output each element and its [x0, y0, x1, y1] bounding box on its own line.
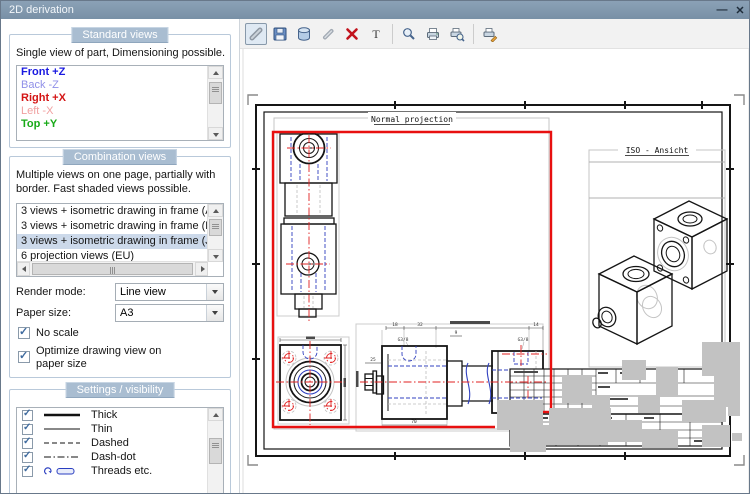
derive-tool-button[interactable] — [245, 23, 267, 45]
scrollbar-thumb[interactable] — [209, 219, 222, 236]
line-style-label: Dash-dot — [91, 451, 136, 463]
scrollbar-thumb[interactable] — [32, 263, 193, 275]
paper-size-label: Paper size: — [16, 307, 71, 319]
iso-view: ISO - Ansicht — [589, 144, 727, 367]
pin-tool-icon — [248, 26, 264, 42]
print-setup-icon — [482, 26, 498, 42]
toolbar: T — [240, 19, 749, 49]
list-item-selected[interactable]: 3 views + isometric drawing in frame (JI… — [17, 234, 223, 249]
iso-block-left — [591, 256, 672, 344]
scrollbar-thumb[interactable] — [209, 438, 222, 464]
svg-text:T: T — [372, 27, 380, 41]
thick-checkbox[interactable] — [22, 410, 33, 421]
dashdot-checkbox[interactable] — [22, 452, 33, 463]
print-setup-button[interactable] — [479, 23, 501, 45]
optimize-checkbox[interactable] — [18, 351, 30, 363]
vertical-scrollbar[interactable] — [207, 408, 223, 494]
printer-icon — [425, 26, 441, 42]
svg-text:G3/8: G3/8 — [518, 337, 529, 343]
combination-description-line1: Multiple views on one page, partially wi… — [16, 169, 215, 181]
no-scale-checkbox[interactable] — [18, 327, 30, 339]
paper-size-select[interactable]: A3 — [115, 304, 224, 322]
optimize-label-line2: paper size — [36, 358, 87, 370]
pin-button[interactable] — [317, 23, 339, 45]
thin-checkbox[interactable] — [22, 424, 33, 435]
scroll-up-button[interactable] — [208, 204, 223, 217]
print-preview-icon — [449, 26, 465, 42]
combination-description-line2: border. Fast shaded views possible. — [16, 183, 191, 195]
threads-checkbox[interactable] — [22, 466, 33, 477]
chevron-down-icon — [212, 311, 218, 315]
standard-views-list: Front +Z Back -Z Right +X Left -X Top +Y — [16, 65, 224, 141]
options-panel: Standard views Single view of part, Dime… — [1, 19, 239, 493]
svg-text:14: 14 — [533, 322, 539, 328]
vertical-scrollbar[interactable] — [207, 66, 223, 140]
optimize-label-line1: Optimize drawing view on — [36, 345, 161, 357]
delete-x-icon — [344, 26, 360, 42]
svg-text:G3/8: G3/8 — [398, 337, 409, 343]
line-style-label: Dashed — [91, 437, 129, 449]
list-item[interactable]: Right +X — [17, 92, 223, 105]
toolbar-separator — [392, 24, 393, 44]
normal-projection-label: Normal projection — [371, 115, 453, 124]
standard-views-legend: Standard views — [71, 27, 168, 43]
toolbar-separator — [473, 24, 474, 44]
dropdown-button[interactable] — [206, 305, 223, 321]
print-preview-button[interactable] — [446, 23, 468, 45]
svg-text:9: 9 — [455, 330, 458, 336]
database-icon — [296, 26, 312, 42]
vertical-scrollbar[interactable] — [207, 204, 223, 262]
chevron-down-icon — [212, 290, 218, 294]
zoom-button[interactable] — [398, 23, 420, 45]
magnifier-icon — [401, 26, 417, 42]
drawing-preview-area[interactable]: Normal projection — [240, 49, 749, 493]
drawing-canvas[interactable]: Normal projection — [240, 49, 750, 494]
title-bar[interactable]: 2D derivation — ✕ — [1, 1, 749, 19]
text-icon: T — [368, 26, 384, 42]
scroll-up-button[interactable] — [208, 66, 223, 79]
dropdown-button[interactable] — [206, 284, 223, 300]
pin-icon — [320, 26, 336, 42]
print-button[interactable] — [422, 23, 444, 45]
combination-views-legend: Combination views — [63, 149, 177, 165]
svg-text:32: 32 — [417, 322, 423, 328]
combination-views-group: Combination views Multiple views on one … — [9, 156, 231, 378]
preview-panel: T — [239, 19, 749, 493]
line-style-label: Thin — [91, 423, 112, 435]
settings-visibility-legend: Settings / visibility — [66, 382, 175, 398]
scroll-down-button[interactable] — [208, 249, 223, 262]
save-icon — [272, 26, 288, 42]
no-scale-label: No scale — [36, 327, 79, 339]
thick-line-icon — [42, 410, 82, 420]
iso-block-right — [652, 201, 727, 289]
paper-size-value: A3 — [116, 307, 206, 319]
list-item[interactable]: 3 views + isometric drawing in frame (AN… — [17, 204, 223, 219]
scroll-right-button[interactable] — [195, 262, 208, 276]
close-button[interactable]: ✕ — [731, 2, 749, 18]
scrollbar-thumb[interactable] — [209, 82, 222, 104]
standard-views-group: Standard views Single view of part, Dime… — [9, 34, 231, 148]
database-button[interactable] — [293, 23, 315, 45]
minimize-button[interactable]: — — [713, 2, 731, 18]
list-item[interactable]: Thick — [17, 408, 223, 422]
scroll-up-button[interactable] — [208, 408, 223, 421]
list-item[interactable]: 3 views + isometric drawing in frame (DI… — [17, 219, 223, 234]
settings-visibility-group: Settings / visibility Thick Thin Dashed — [9, 389, 231, 494]
scroll-left-button[interactable] — [17, 262, 30, 276]
svg-text:18: 18 — [392, 322, 398, 328]
line-style-label: Thick — [91, 409, 117, 421]
list-item[interactable]: Thin — [17, 422, 223, 436]
combination-views-list: 3 views + isometric drawing in frame (AN… — [16, 203, 224, 277]
dashdot-line-icon — [42, 452, 82, 462]
render-mode-value: Line view — [116, 286, 206, 298]
threads-icon — [42, 466, 82, 476]
render-mode-label: Render mode: — [16, 286, 86, 298]
dashed-checkbox[interactable] — [22, 438, 33, 449]
scroll-down-button[interactable] — [208, 127, 223, 140]
list-item[interactable]: Front +Z — [17, 66, 223, 79]
front-view — [277, 133, 339, 322]
thin-line-icon — [42, 424, 82, 434]
standard-views-description: Single view of part, Dimensioning possib… — [16, 47, 225, 59]
list-item[interactable]: Dash-dot — [17, 450, 223, 464]
svg-text:25: 25 — [370, 357, 376, 363]
list-item[interactable]: Top +Y — [17, 118, 223, 131]
list-item[interactable]: Threads etc. — [17, 464, 223, 478]
list-item[interactable]: Dashed — [17, 436, 223, 450]
flange-view — [276, 337, 349, 426]
render-mode-select[interactable]: Line view — [115, 283, 224, 301]
dashed-line-icon — [42, 438, 82, 448]
settings-list: Thick Thin Dashed Dash-dot — [16, 407, 224, 494]
line-style-label: Threads etc. — [91, 465, 152, 477]
list-item[interactable]: Back -Z — [17, 79, 223, 92]
list-item[interactable]: Left -X — [17, 105, 223, 118]
delete-button[interactable] — [341, 23, 363, 45]
dialog-2d-derivation: 2D derivation — ✕ Standard views Single … — [0, 0, 750, 494]
text-tool-button[interactable]: T — [365, 23, 387, 45]
save-button[interactable] — [269, 23, 291, 45]
iso-view-label: ISO - Ansicht — [626, 146, 689, 155]
horizontal-scrollbar[interactable] — [17, 261, 208, 276]
window-title: 2D derivation — [1, 4, 713, 16]
